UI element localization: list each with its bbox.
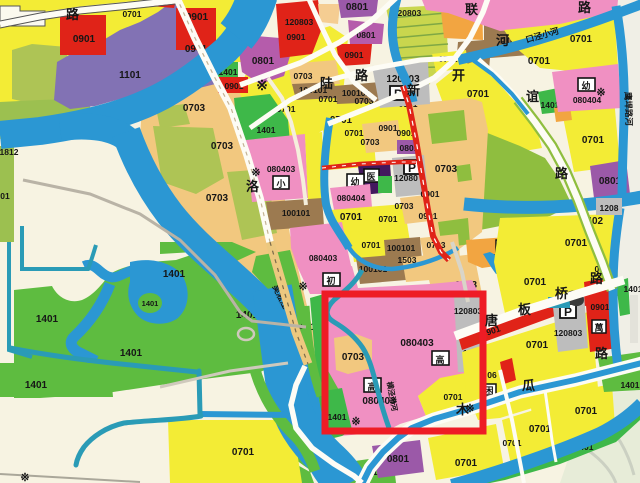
svg-text:※: ※ [256, 77, 268, 93]
svg-text:080404: 080404 [337, 193, 366, 203]
svg-text:1101: 1101 [119, 70, 141, 81]
svg-text:1401: 1401 [36, 314, 59, 325]
svg-text:0901: 0901 [287, 32, 306, 42]
svg-text:0703: 0703 [435, 164, 458, 175]
svg-text:板: 板 [518, 302, 532, 317]
svg-text:1401: 1401 [621, 380, 640, 390]
svg-text:120803: 120803 [454, 306, 483, 316]
svg-text:河: 河 [496, 33, 509, 48]
svg-text:木: 木 [455, 402, 470, 417]
svg-text:120803: 120803 [554, 328, 583, 338]
svg-text:0701: 0701 [575, 406, 598, 417]
svg-text:幼: 幼 [581, 80, 590, 91]
svg-text:1401: 1401 [328, 412, 347, 422]
svg-text:0703: 0703 [361, 137, 380, 147]
svg-text:0701: 0701 [582, 135, 605, 146]
svg-text:0701: 0701 [123, 9, 142, 19]
svg-text:0703: 0703 [342, 352, 365, 363]
svg-text:0701: 0701 [526, 340, 549, 351]
svg-text:0701: 0701 [570, 34, 593, 45]
svg-text:1401: 1401 [163, 269, 186, 280]
svg-text:1401: 1401 [142, 299, 159, 308]
svg-text:0703: 0703 [294, 71, 313, 81]
svg-text:100101: 100101 [282, 208, 311, 218]
svg-text:萬: 萬 [594, 322, 603, 333]
svg-text:0901: 0901 [591, 302, 610, 312]
svg-text:鹰垾路河: 鹰垾路河 [623, 92, 634, 127]
svg-text:0701: 0701 [362, 240, 381, 250]
svg-text:※: ※ [596, 87, 605, 99]
svg-text:0701: 0701 [340, 212, 363, 223]
svg-text:1401: 1401 [25, 380, 48, 391]
svg-text:080403: 080403 [400, 338, 434, 349]
svg-text:1401: 1401 [257, 125, 276, 135]
svg-text:※: ※ [20, 472, 29, 483]
svg-text:路: 路 [355, 68, 369, 83]
svg-text:0901: 0901 [345, 50, 364, 60]
svg-text:0901: 0901 [379, 123, 398, 133]
svg-text:0701: 0701 [444, 392, 463, 402]
svg-text:路: 路 [595, 346, 609, 361]
svg-text:开: 开 [452, 68, 465, 83]
svg-text:小: 小 [275, 178, 285, 189]
svg-text:12080: 12080 [394, 173, 418, 183]
svg-text:0703: 0703 [183, 103, 206, 114]
svg-text:100101: 100101 [387, 243, 416, 253]
svg-text:陆: 陆 [320, 76, 333, 91]
svg-text:初: 初 [326, 275, 335, 286]
svg-text:120803: 120803 [285, 17, 314, 27]
svg-text:0701: 0701 [455, 458, 478, 469]
svg-text:0703: 0703 [206, 193, 229, 204]
svg-text:0701: 0701 [319, 94, 338, 104]
svg-text:路: 路 [578, 0, 592, 15]
svg-text:0703: 0703 [211, 141, 234, 152]
svg-text:新: 新 [407, 83, 420, 98]
svg-text:※: ※ [251, 167, 260, 179]
svg-text:0901: 0901 [73, 34, 96, 45]
svg-text:谊: 谊 [526, 89, 539, 104]
svg-text:0701: 0701 [529, 424, 552, 435]
svg-text:0701: 0701 [524, 277, 547, 288]
svg-text:瓜: 瓜 [522, 378, 535, 393]
svg-text:06: 06 [487, 370, 497, 380]
svg-text:0703: 0703 [395, 201, 414, 211]
svg-text:1401: 1401 [624, 284, 640, 294]
svg-text:※: ※ [298, 281, 307, 293]
svg-text:0701: 0701 [565, 238, 588, 249]
svg-text:0801: 0801 [387, 454, 410, 465]
svg-text:080403: 080403 [309, 253, 338, 263]
svg-text:0701: 0701 [232, 447, 255, 458]
svg-text:080403: 080403 [267, 164, 296, 174]
svg-text:桥: 桥 [555, 286, 569, 301]
svg-text:1401: 1401 [120, 348, 143, 359]
svg-text:联: 联 [465, 2, 478, 17]
svg-text:0701: 0701 [528, 56, 551, 67]
svg-text:0701: 0701 [379, 214, 398, 224]
svg-text:唐: 唐 [485, 313, 498, 328]
svg-text:0801: 0801 [252, 56, 275, 67]
svg-text:0801: 0801 [346, 2, 369, 13]
svg-text:高: 高 [435, 354, 444, 365]
svg-text:路: 路 [590, 271, 604, 286]
svg-text:路: 路 [66, 7, 80, 22]
svg-text:医: 医 [366, 172, 375, 182]
svg-text:01: 01 [0, 191, 10, 201]
svg-text:洛: 洛 [246, 179, 260, 194]
svg-text:1208: 1208 [600, 203, 619, 213]
svg-text:※: ※ [351, 416, 360, 428]
svg-text:路: 路 [555, 166, 569, 181]
